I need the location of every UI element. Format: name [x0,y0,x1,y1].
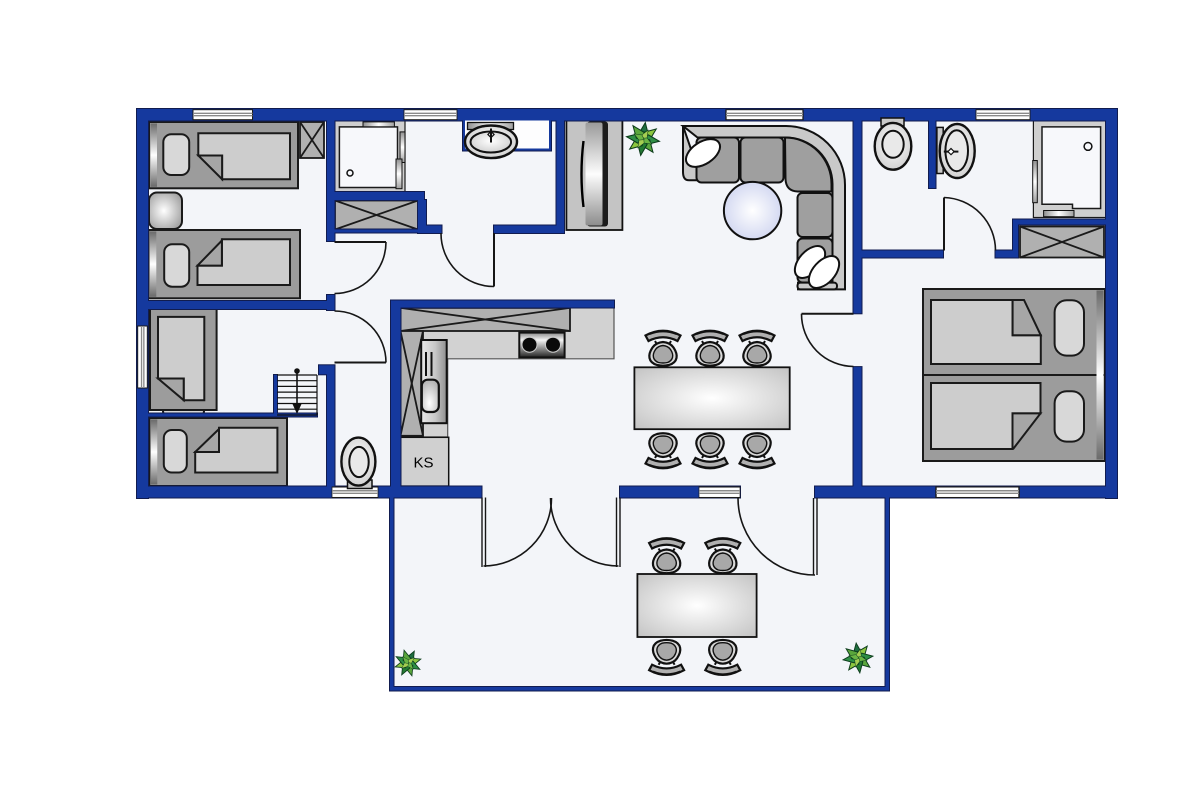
svg-text:KS: KS [413,455,433,472]
